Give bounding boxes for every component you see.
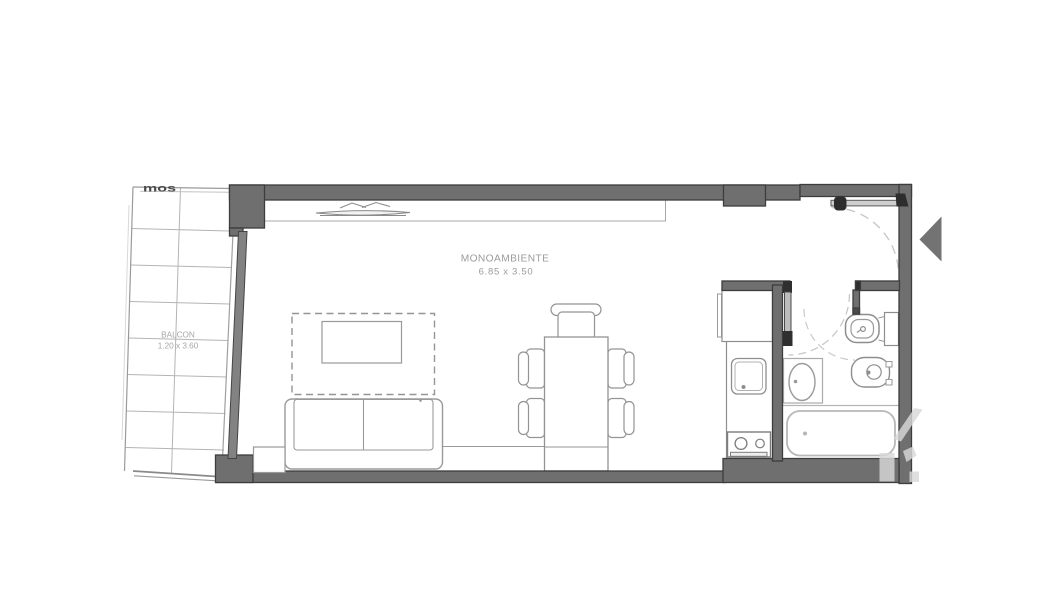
svg-text:1.20 x 3.60: 1.20 x 3.60 <box>158 342 199 351</box>
svg-text:6.85 x 3.50: 6.85 x 3.50 <box>479 267 534 278</box>
svg-text:BALCON: BALCON <box>161 331 195 340</box>
svg-text:MONOAMBIENTE: MONOAMBIENTE <box>461 254 550 265</box>
svg-text:mos: mos <box>143 184 177 195</box>
